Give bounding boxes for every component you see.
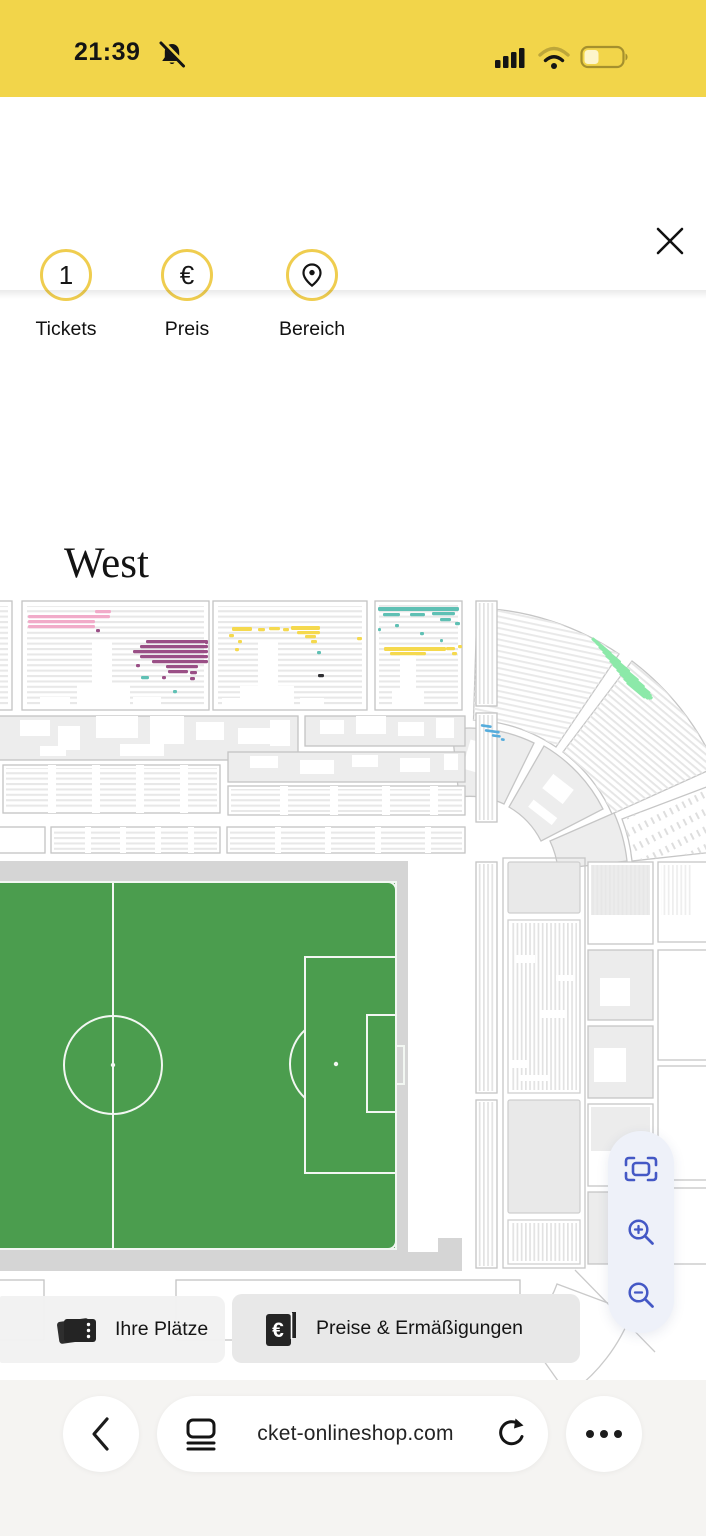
seat-row-highlight-purple[interactable] [168,670,188,673]
stadium-seat-map[interactable] [0,560,706,1390]
seat-row-highlight-yellow[interactable] [229,634,234,637]
football-pitch [0,861,462,1271]
reload-button[interactable] [494,1417,526,1451]
seat-row-highlight-yellow[interactable] [446,647,455,650]
notifications-muted-icon [157,40,187,70]
seat-row-highlight-yellow[interactable] [258,628,265,631]
prices-discounts-button[interactable]: € Preise & Ermäßigungen [232,1294,580,1363]
seat-row-highlight-yellow[interactable] [311,640,317,643]
seat-row-highlight-yellow[interactable] [232,627,252,631]
seat-row-highlight-teal[interactable] [440,639,443,642]
seat-row-highlight-yellow[interactable] [297,631,320,634]
seat-section [375,601,462,710]
seat-row-highlight-yellow[interactable] [269,627,280,630]
seat-row-highlight-teal[interactable] [173,690,177,693]
seat-row-highlight-teal[interactable] [410,613,425,616]
more-button[interactable] [566,1396,642,1472]
seat-row-highlight-teal[interactable] [440,618,451,621]
seat-row-highlight-yellow[interactable] [291,626,320,630]
zoom-out-button[interactable] [613,1267,669,1323]
wifi-icon [537,45,571,70]
status-indicators [494,44,630,70]
seat-row-highlight-yellow[interactable] [357,637,362,640]
mobile-browser-screen: 21:39 [0,0,706,1536]
seat-row-highlight-yellow[interactable] [305,635,316,638]
seat-row-highlight-teal[interactable] [455,622,460,625]
seat-row-highlight-pink[interactable] [28,625,95,628]
more-ellipsis-icon [586,1430,594,1438]
location-pin-icon [299,262,325,288]
prices-discounts-label: Preise & Ermäßigungen [316,1317,523,1340]
browser-toolbar: cket-onlineshop.com [0,1380,706,1536]
seat-row-highlight-pink[interactable] [95,610,111,613]
price-list-icon: € [262,1309,300,1349]
seat-row-highlight-teal[interactable] [317,651,321,654]
seat-row-highlight-yellow[interactable] [458,645,462,648]
euro-sign: € [180,260,194,291]
zoom-in-button[interactable] [613,1204,669,1260]
close-icon [654,225,686,257]
seat-row-highlight-purple[interactable] [140,645,208,648]
seat-row-highlight-purple[interactable] [205,641,208,644]
filter-label: Bereich [257,318,367,341]
your-seats-label: Ihre Plätze [115,1318,208,1341]
fit-screen-button[interactable] [613,1141,669,1197]
seat-row-highlight-yellow[interactable] [235,648,239,651]
back-chevron-icon [89,1415,113,1453]
filter-label: Preis [132,318,242,341]
seat-row-highlight-purple[interactable] [190,677,195,680]
seat-row-highlight-teal[interactable] [378,607,459,611]
seat-row-highlight-purple[interactable] [190,671,197,674]
seat-row-highlight-purple[interactable] [166,665,198,668]
seat-row-highlight-pink[interactable] [28,615,110,618]
seat-row-highlight-purple[interactable] [133,650,208,653]
seat-section [0,601,12,710]
url-text: cket-onlineshop.com [217,1422,494,1446]
tickets-count: 1 [59,260,73,291]
seat-row-highlight-teal[interactable] [378,628,381,631]
seat-row-highlight-yellow[interactable] [390,652,426,655]
seat-row-highlight-purple[interactable] [96,629,100,632]
seat-row-highlight-yellow[interactable] [384,647,446,651]
seat-row-highlight-dark[interactable] [318,674,324,677]
seat-row-highlight-purple[interactable] [136,664,140,667]
svg-text:€: € [272,1319,284,1342]
battery-icon [580,44,630,70]
close-button[interactable] [650,221,690,261]
url-bar[interactable]: cket-onlineshop.com [157,1396,548,1472]
reader-page-icon [185,1417,217,1451]
filter-label: Tickets [11,318,121,341]
map-zoom-controls [608,1131,674,1333]
cellular-signal-icon [494,45,528,69]
seat-row-highlight-yellow[interactable] [283,628,289,631]
zoom-in-icon [626,1217,656,1247]
seat-row-highlight-teal[interactable] [432,612,455,615]
seat-row-highlight-teal[interactable] [395,624,399,627]
hospitality-box-rows[interactable] [0,716,465,853]
seat-row-highlight-teal[interactable] [141,676,149,679]
seat-row-highlight-pink[interactable] [28,620,95,623]
status-bar: 21:39 [0,0,706,97]
seat-row-highlight-teal[interactable] [383,613,400,616]
fit-screen-icon [624,1156,658,1182]
seat-section [213,601,367,710]
zoom-out-icon [626,1280,656,1310]
seat-row-highlight-purple[interactable] [152,660,208,663]
seat-row-highlight-purple[interactable] [162,676,166,679]
seat-row-highlight-purple[interactable] [140,655,208,658]
your-seats-button[interactable]: Ihre Plätze [0,1296,225,1363]
seat-row-highlight-purple[interactable] [146,640,208,643]
seat-row-highlight-yellow[interactable] [238,640,242,643]
seat-row-highlight-teal[interactable] [420,632,424,635]
header-shadow [0,290,706,299]
seat-row-highlight-yellow[interactable] [452,652,457,655]
tickets-stack-icon [56,1312,100,1348]
status-time: 21:39 [74,38,140,67]
back-button[interactable] [63,1396,139,1472]
ticket-filter-header: 1 Tickets € Preis Bereich [0,97,706,290]
